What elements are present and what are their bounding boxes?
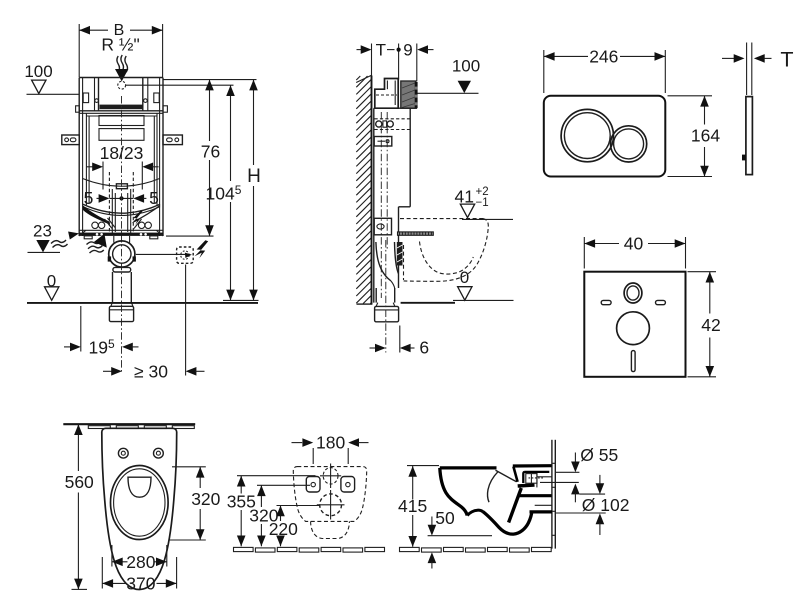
- svg-text:220: 220: [269, 519, 298, 539]
- svg-text:23: 23: [33, 222, 52, 241]
- svg-text:180: 180: [316, 432, 345, 452]
- svg-text:≥ 30: ≥ 30: [134, 361, 168, 381]
- svg-text:560: 560: [65, 472, 94, 492]
- svg-text:H: H: [247, 166, 261, 187]
- svg-text:0: 0: [460, 268, 469, 287]
- svg-text:100: 100: [452, 57, 480, 76]
- svg-text:Ø 55: Ø 55: [580, 445, 618, 465]
- svg-text:T: T: [780, 47, 793, 71]
- svg-text:415: 415: [398, 496, 427, 516]
- svg-text:50: 50: [435, 508, 455, 528]
- svg-text:R ½": R ½": [101, 35, 139, 55]
- svg-text:164: 164: [691, 126, 720, 146]
- svg-text:280: 280: [126, 552, 155, 572]
- svg-text:76: 76: [201, 141, 220, 161]
- svg-text:370: 370: [126, 573, 155, 593]
- svg-text:100: 100: [24, 62, 52, 81]
- svg-text:246: 246: [589, 46, 618, 66]
- svg-text:40: 40: [624, 233, 644, 253]
- svg-text:6: 6: [419, 338, 429, 358]
- svg-text:T: T: [376, 40, 386, 59]
- svg-text:Ø 102: Ø 102: [582, 495, 630, 515]
- svg-text:9: 9: [403, 40, 412, 59]
- svg-text:42: 42: [701, 315, 720, 335]
- svg-text:−1: −1: [476, 197, 489, 209]
- svg-text:320: 320: [191, 489, 220, 509]
